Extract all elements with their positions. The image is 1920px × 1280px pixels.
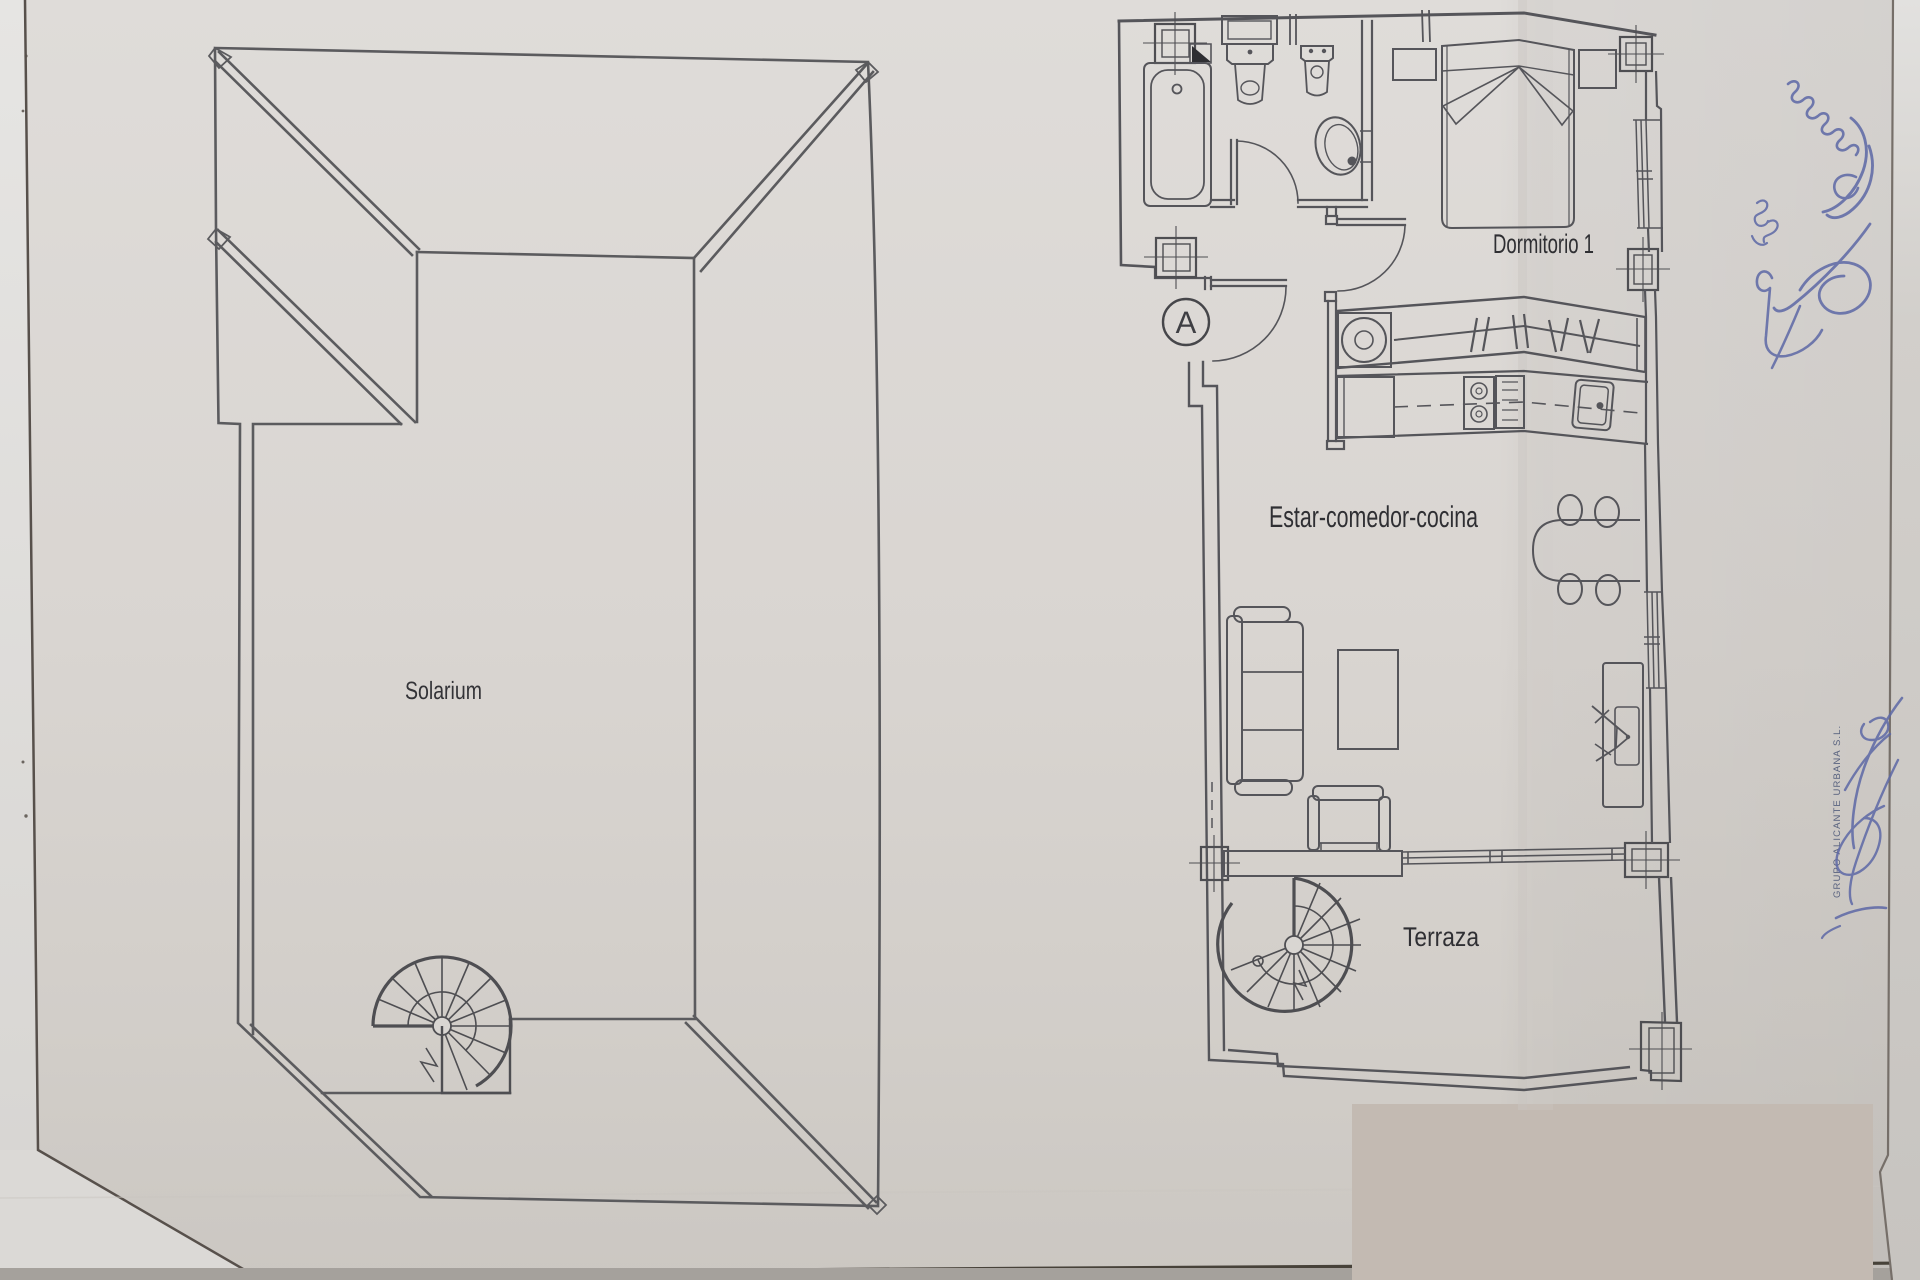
svg-text:Terraza: Terraza — [1403, 922, 1480, 952]
svg-text:Dormitorio 1: Dormitorio 1 — [1493, 229, 1594, 259]
svg-text:Estar-comedor-cocina: Estar-comedor-cocina — [1269, 501, 1478, 534]
svg-text:Solarium: Solarium — [405, 677, 482, 705]
svg-text:A: A — [1176, 305, 1197, 340]
